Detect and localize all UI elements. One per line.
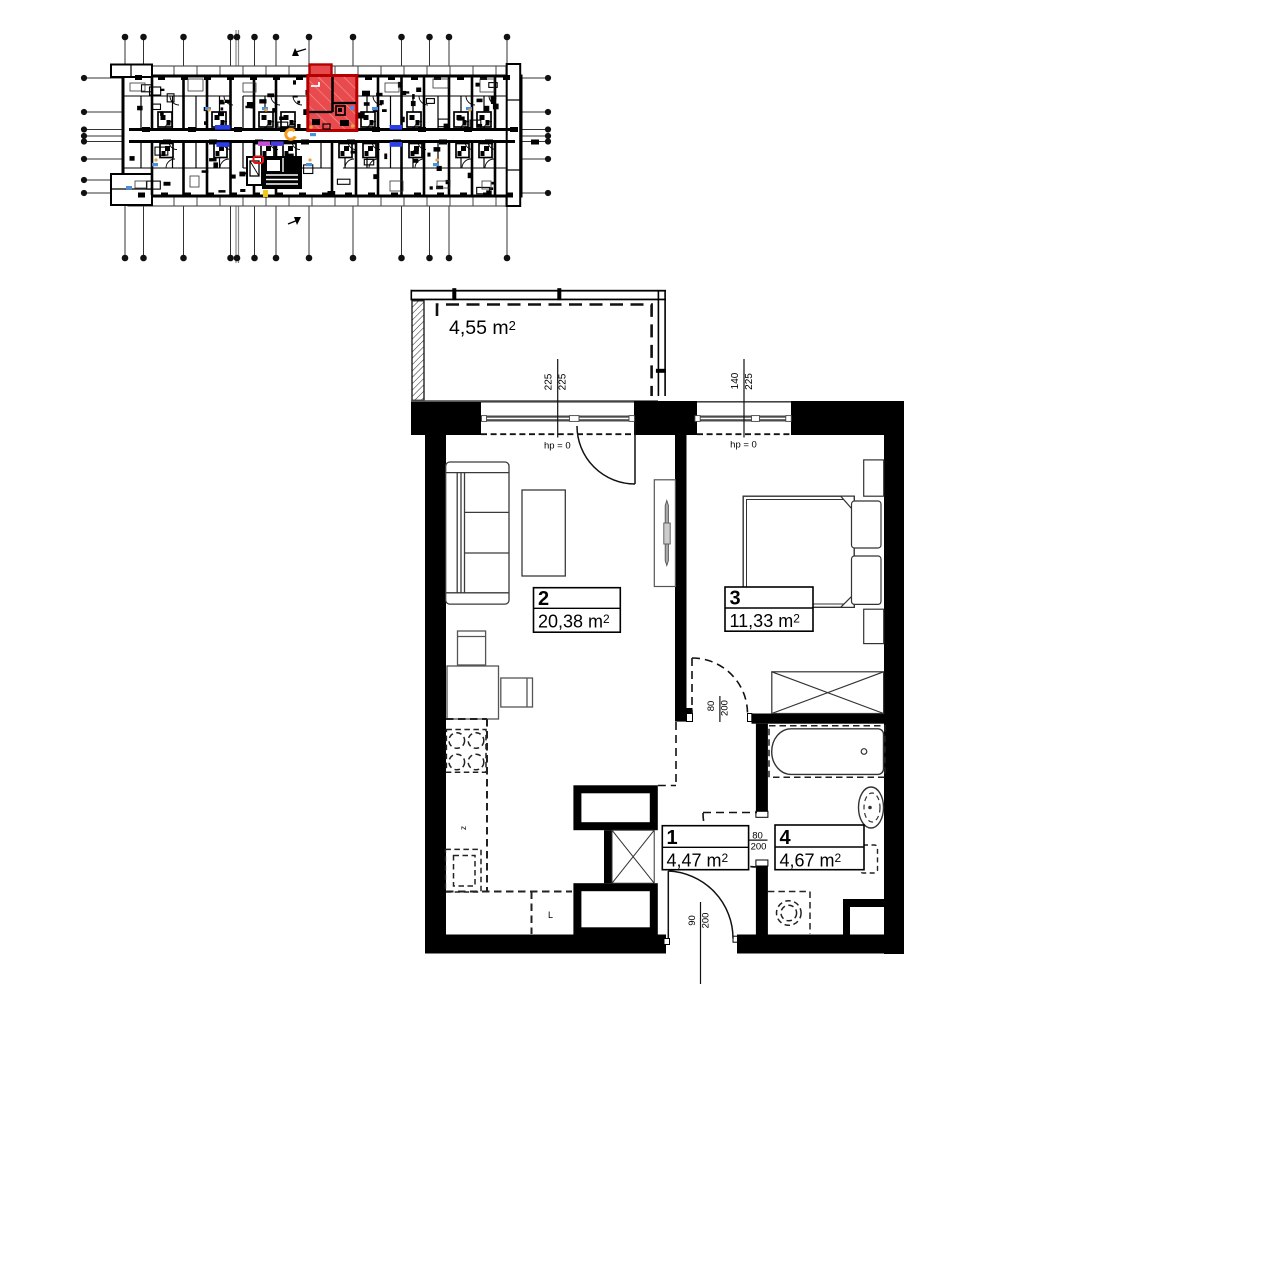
svg-text:11,33 m2: 11,33 m2 [730, 611, 801, 631]
svg-text:z: z [458, 826, 468, 830]
svg-text:225: 225 [744, 373, 755, 390]
svg-text:L: L [548, 910, 553, 920]
svg-text:200: 200 [720, 700, 731, 716]
svg-text:80: 80 [752, 831, 763, 842]
svg-text:200: 200 [701, 913, 712, 929]
svg-text:3: 3 [730, 588, 741, 610]
svg-text:4,55 m2: 4,55 m2 [449, 317, 516, 339]
svg-text:2: 2 [538, 588, 549, 610]
svg-text:1: 1 [667, 827, 678, 849]
svg-text:4,47 m2: 4,47 m2 [667, 851, 729, 871]
svg-text:200: 200 [751, 842, 767, 853]
svg-text:90: 90 [687, 915, 698, 926]
svg-text:140: 140 [730, 372, 741, 389]
svg-text:hp = 0: hp = 0 [730, 440, 757, 451]
svg-text:80: 80 [706, 701, 717, 712]
svg-text:hp = 0: hp = 0 [544, 441, 571, 452]
svg-text:225: 225 [544, 373, 555, 390]
svg-text:225: 225 [558, 373, 569, 390]
svg-text:4,67 m2: 4,67 m2 [780, 850, 842, 870]
svg-text:4: 4 [780, 827, 792, 849]
svg-text:20,38 m2: 20,38 m2 [538, 612, 610, 632]
